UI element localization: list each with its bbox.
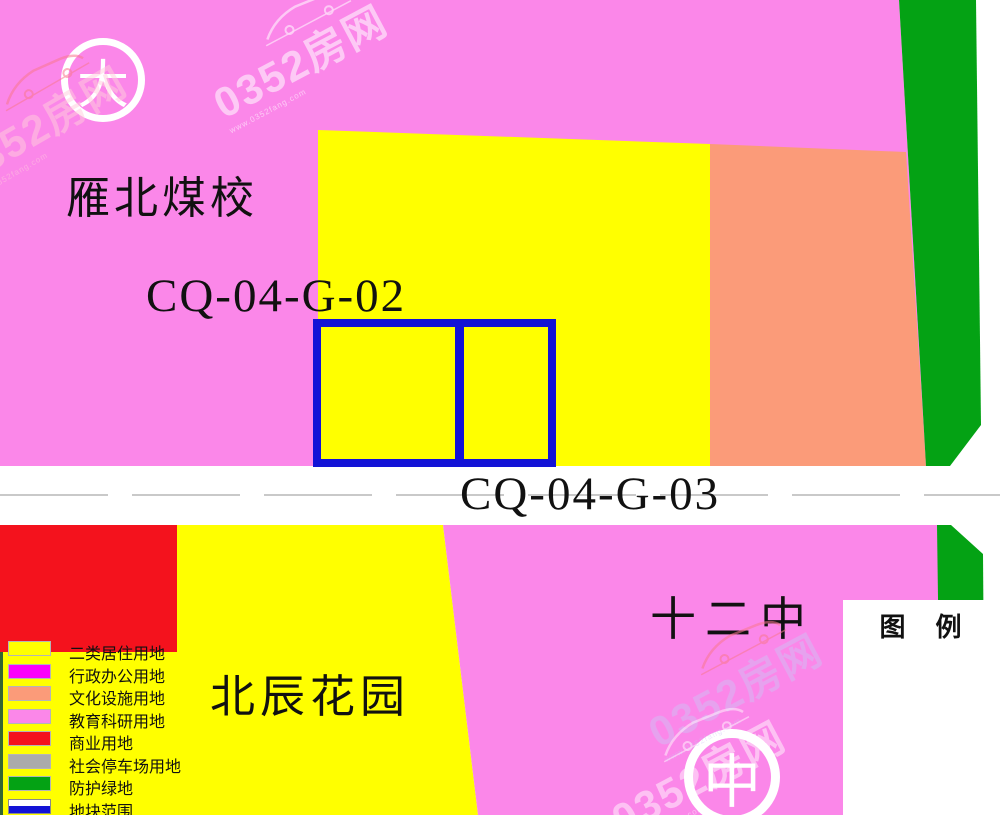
legend-label: 地块范围 <box>69 798 133 815</box>
legend-row: 商业用地 <box>0 728 157 750</box>
legend-swatch-education <box>8 709 51 724</box>
legend-swatch-plot-boundary <box>8 799 51 814</box>
legend-panel: 图 例 <box>843 600 1000 815</box>
legend-row: 行政办公用地 <box>0 661 157 683</box>
legend-title: 图 例 <box>843 600 1000 644</box>
legend-row: 社会停车场用地 <box>0 751 157 773</box>
plot-boundary-rect <box>313 319 556 467</box>
legend-swatch-admin-office <box>8 664 51 679</box>
marker-zhong-text: 中 <box>703 735 761 815</box>
legend-swatch-plot-boundary-bar <box>9 806 50 813</box>
zoning-map: 雁北煤校 CQ-04-G-02 CQ-04-G-03 十二中 北辰花园 大 中 … <box>0 0 1000 815</box>
label-no12-middle-school: 十二中 <box>650 596 815 644</box>
marker-da-text: 大 <box>77 43 129 118</box>
marker-da-circle: 大 <box>61 38 145 122</box>
legend-swatch-cultural <box>8 686 51 701</box>
legend-swatch-green-buffer <box>8 776 51 791</box>
legend-row: 文化设施用地 <box>0 683 157 705</box>
label-beichen-garden: 北辰花园 <box>210 674 410 721</box>
label-plot-code-cq-04-g-02: CQ-04-G-02 <box>146 272 406 321</box>
region-commercial <box>0 525 177 652</box>
label-yanbei-coal-school: 雁北煤校 <box>66 176 258 222</box>
plot-boundary-divider <box>455 327 464 459</box>
marker-zhong-circle: 中 <box>684 729 780 815</box>
legend-row: 防护绿地 <box>0 773 157 795</box>
legend-swatch-residential <box>8 641 51 656</box>
legend-row: 二类居住用地 <box>0 638 157 660</box>
legend-row: 地块范围 <box>0 796 157 815</box>
legend-swatch-commercial <box>8 731 51 746</box>
legend-swatch-parking <box>8 754 51 769</box>
legend-row: 教育科研用地 <box>0 706 157 728</box>
label-plot-code-cq-04-g-03: CQ-04-G-03 <box>460 470 720 519</box>
